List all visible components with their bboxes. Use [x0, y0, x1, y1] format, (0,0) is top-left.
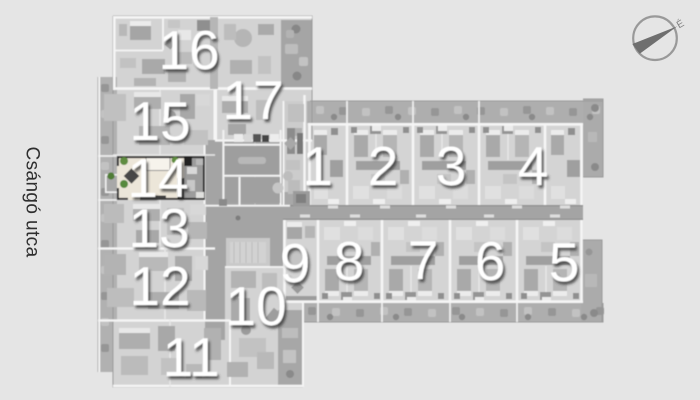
svg-text:6: 6 — [475, 230, 506, 292]
svg-text:14: 14 — [127, 147, 188, 209]
svg-text:8: 8 — [334, 230, 365, 292]
svg-text:4: 4 — [518, 135, 549, 197]
svg-text:15: 15 — [129, 90, 190, 152]
svg-text:7: 7 — [408, 229, 439, 291]
svg-text:17: 17 — [222, 69, 283, 131]
svg-text:12: 12 — [129, 255, 190, 317]
svg-text:10: 10 — [225, 275, 286, 337]
svg-text:5: 5 — [549, 231, 580, 293]
svg-text:Csángó utca: Csángó utca — [22, 146, 43, 257]
svg-text:11: 11 — [162, 326, 219, 388]
svg-text:1: 1 — [302, 135, 333, 197]
svg-text:3: 3 — [436, 135, 467, 197]
svg-text:16: 16 — [158, 19, 219, 81]
svg-text:2: 2 — [368, 135, 399, 197]
